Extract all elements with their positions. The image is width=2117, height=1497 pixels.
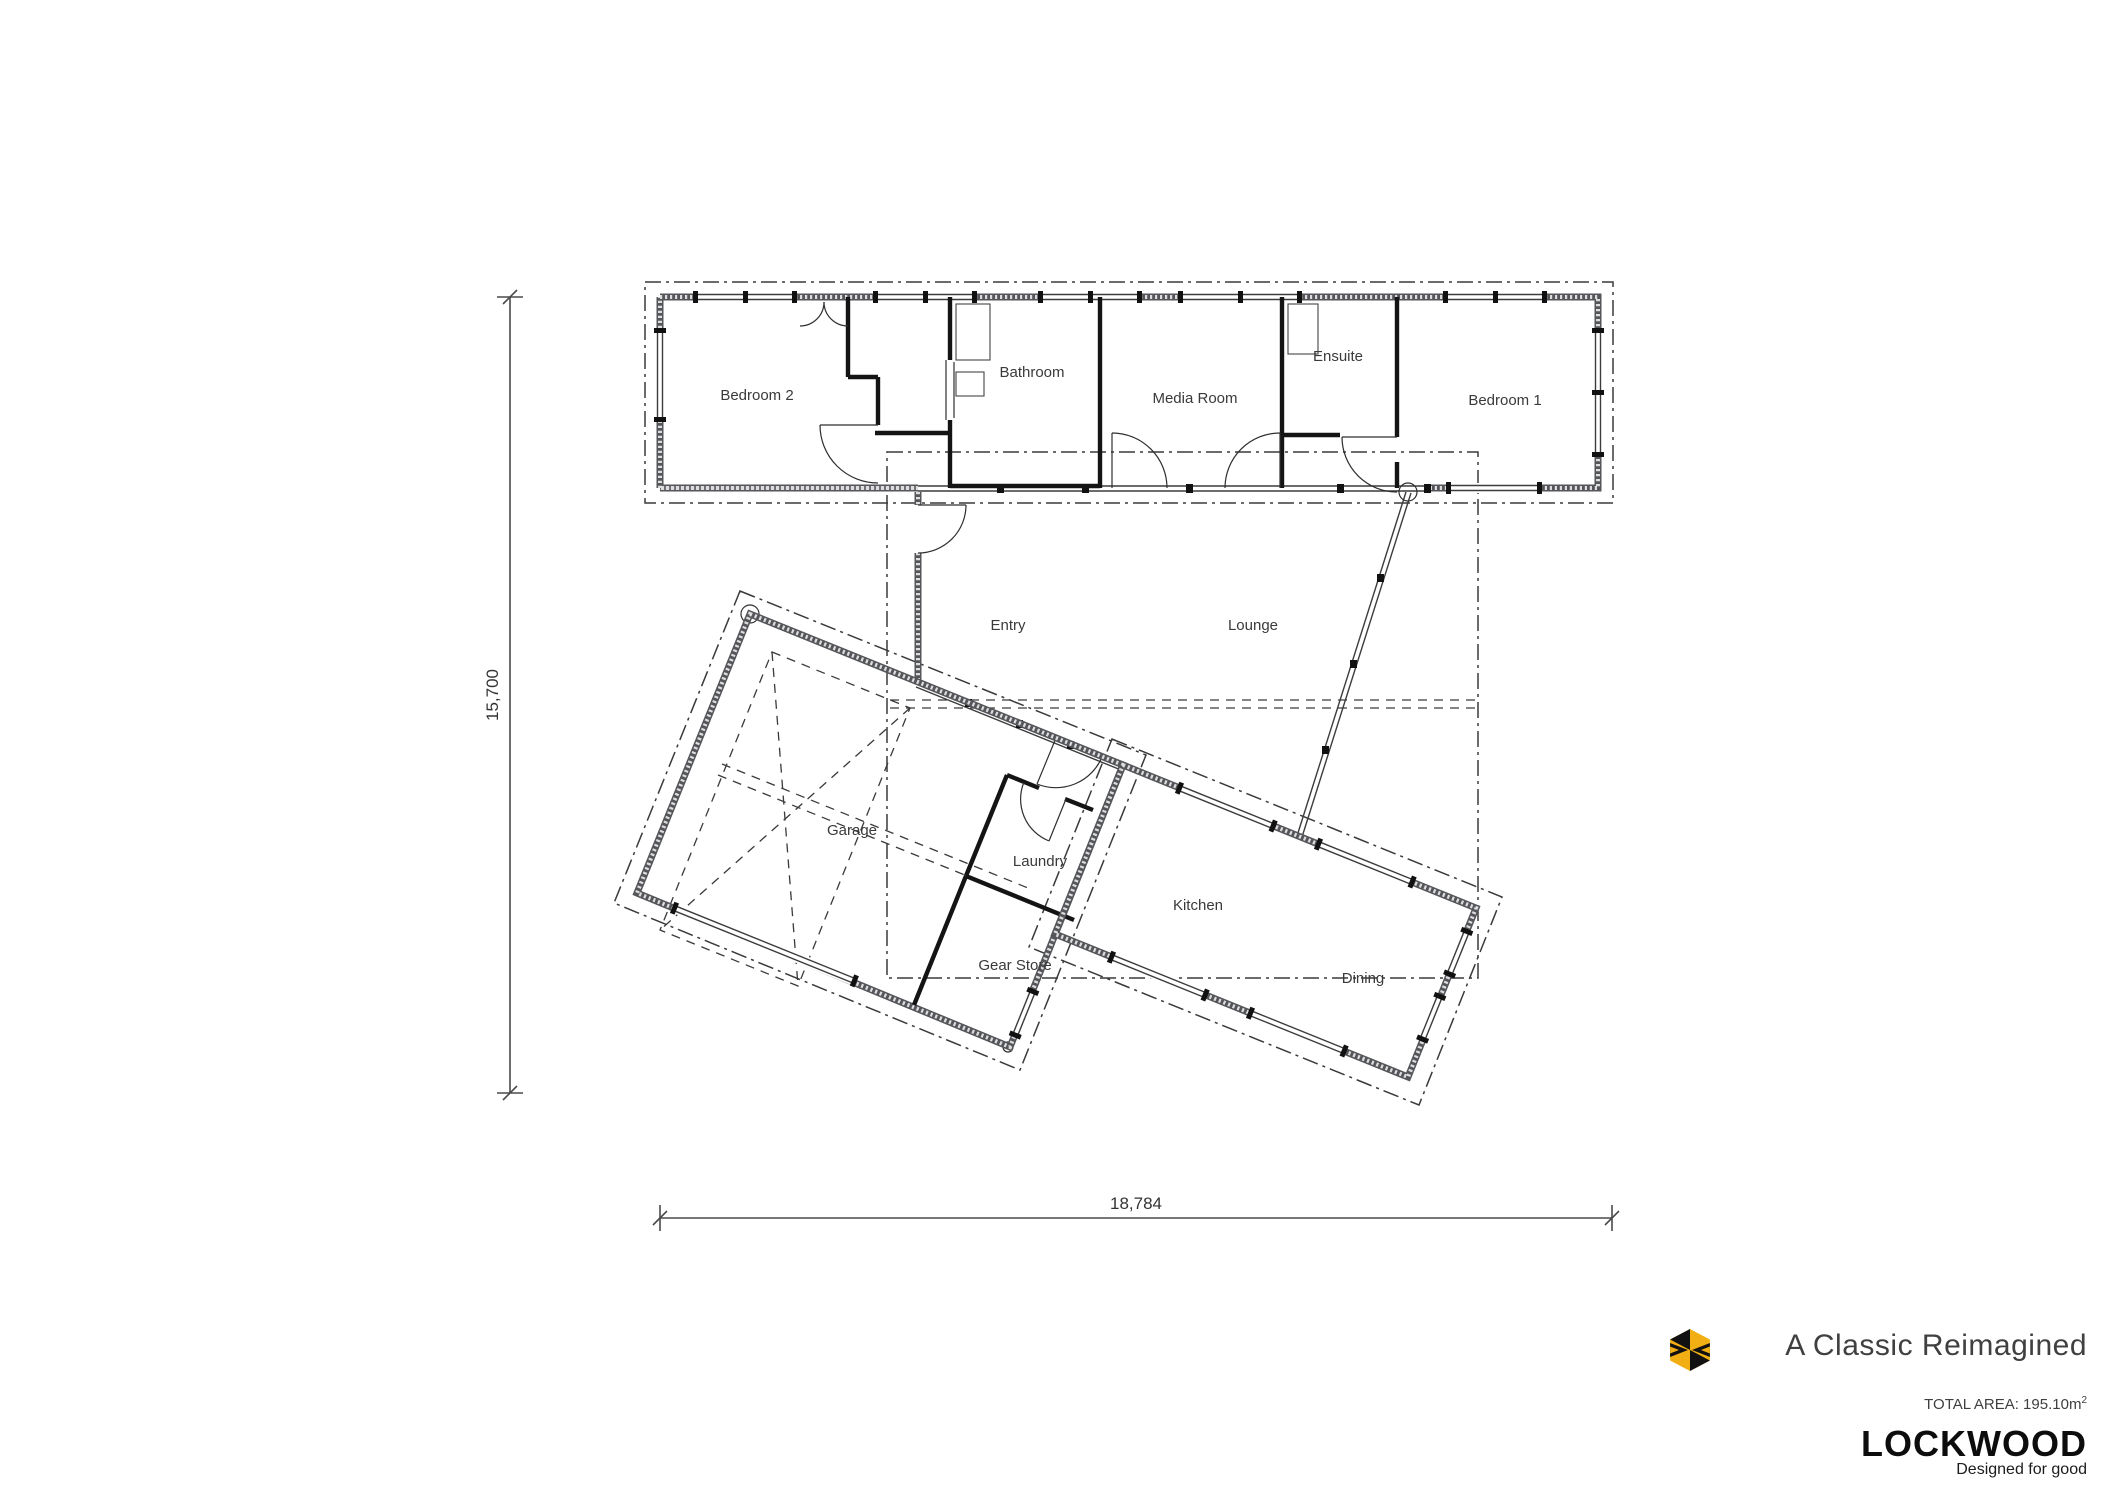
garage-wing (637, 614, 1123, 1047)
room-label-laundry: Laundry (1013, 853, 1068, 870)
dimension-lines: 15,700 18,784 (483, 290, 1619, 1231)
room-label-bedroom1: Bedroom 1 (1468, 392, 1541, 409)
roof-outlines (614, 282, 1613, 1105)
room-label-garage: Garage (827, 822, 877, 839)
room-label-bedroom2: Bedroom 2 (720, 387, 793, 404)
room-label-media: Media Room (1152, 390, 1237, 407)
bedroom-wing-partitions (848, 297, 1397, 488)
room-label-kitchen: Kitchen (1173, 897, 1223, 914)
room-label-gear: Gear Store (978, 957, 1051, 974)
room-label-entry: Entry (990, 617, 1026, 634)
brand-name: LOCKWOOD (1861, 1423, 2087, 1465)
width-dimension: 18,784 (1110, 1194, 1162, 1213)
lockwood-hexagon-icon (1667, 1329, 1713, 1371)
room-label-ensuite: Ensuite (1313, 348, 1363, 365)
room-label-dining: Dining (1342, 970, 1385, 987)
kitchen-dining-wing (1055, 765, 1476, 1077)
total-area-sup: 2 (2081, 1395, 2087, 1406)
bedroom-wing (654, 291, 1604, 494)
floor-plan-sheet: 15,700 18,784 (0, 0, 2117, 1497)
lockwood-logo: LOCKWOOD (1667, 1423, 2087, 1465)
floor-plan-drawing: 15,700 18,784 (0, 0, 2117, 1497)
room-label-lounge: Lounge (1228, 617, 1278, 634)
window-bands-sides (654, 328, 1604, 494)
total-area-text: TOTAL AREA: 195.10m (1924, 1396, 2081, 1413)
height-dimension: 15,700 (483, 669, 502, 721)
entry-lounge (741, 483, 1417, 1052)
total-area: TOTAL AREA: 195.10m2 (1667, 1395, 2087, 1413)
room-label-bathroom: Bathroom (999, 364, 1064, 381)
plan-title: A Classic Reimagined (1667, 1329, 2087, 1363)
room-labels: Bedroom 2 Bathroom Media Room Ensuite Be… (720, 348, 1541, 987)
title-block: A Classic Reimagined TOTAL AREA: 195.10m… (1667, 1329, 2087, 1479)
